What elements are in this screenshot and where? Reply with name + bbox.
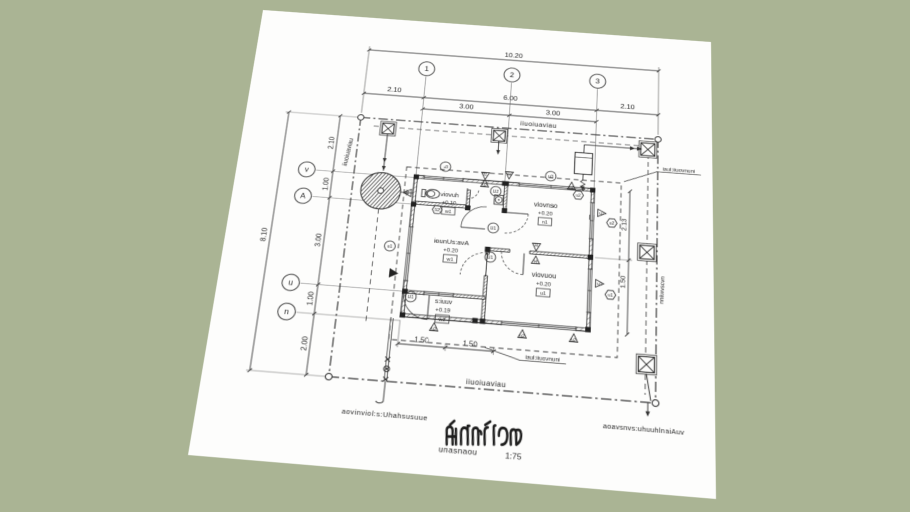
svg-text:u2: u2 xyxy=(599,211,604,216)
svg-text:u2: u2 xyxy=(404,191,409,196)
svg-text:1.50: 1.50 xyxy=(462,340,478,349)
svg-text:w1: w1 xyxy=(445,208,453,214)
svg-text:w2: w2 xyxy=(439,316,447,322)
svg-text:nniiwvscvn: nniiwvscvn xyxy=(659,276,667,304)
svg-text:n1: n1 xyxy=(542,219,549,225)
svg-text:2.10: 2.10 xyxy=(620,103,635,111)
svg-text:u2: u2 xyxy=(571,338,576,343)
svg-text:u2: u2 xyxy=(431,327,437,332)
svg-text:10.20: 10.20 xyxy=(504,52,523,60)
svg-text:w1: w1 xyxy=(447,256,455,262)
svg-text:1:75: 1:75 xyxy=(505,452,522,462)
svg-text:u1: u1 xyxy=(608,293,613,298)
svg-text:2.10: 2.10 xyxy=(327,136,337,149)
svg-text:3.00: 3.00 xyxy=(546,110,561,118)
svg-text:u2: u2 xyxy=(609,221,614,226)
svg-text:n2: n2 xyxy=(507,172,512,176)
svg-text:u2: u2 xyxy=(519,334,524,339)
svg-text:1.50: 1.50 xyxy=(620,275,627,289)
svg-text:2.10: 2.10 xyxy=(387,86,402,94)
svg-text:3.00: 3.00 xyxy=(459,103,474,111)
svg-text:52: 52 xyxy=(434,208,439,213)
svg-text:s:iuuv: s:iuuv xyxy=(435,298,453,306)
svg-text:u2: u2 xyxy=(576,193,581,198)
svg-text:u1: u1 xyxy=(597,282,602,287)
svg-text:l2: l2 xyxy=(484,172,488,176)
svg-text:u2: u2 xyxy=(482,183,487,188)
svg-text:1.50: 1.50 xyxy=(414,336,430,345)
svg-text:u1: u1 xyxy=(540,290,547,296)
svg-text:2.13: 2.13 xyxy=(621,218,628,231)
svg-text:2: 2 xyxy=(510,71,515,79)
svg-text:n2: n2 xyxy=(569,186,574,191)
svg-text:1: 1 xyxy=(424,65,429,73)
svg-text:3: 3 xyxy=(595,78,600,86)
